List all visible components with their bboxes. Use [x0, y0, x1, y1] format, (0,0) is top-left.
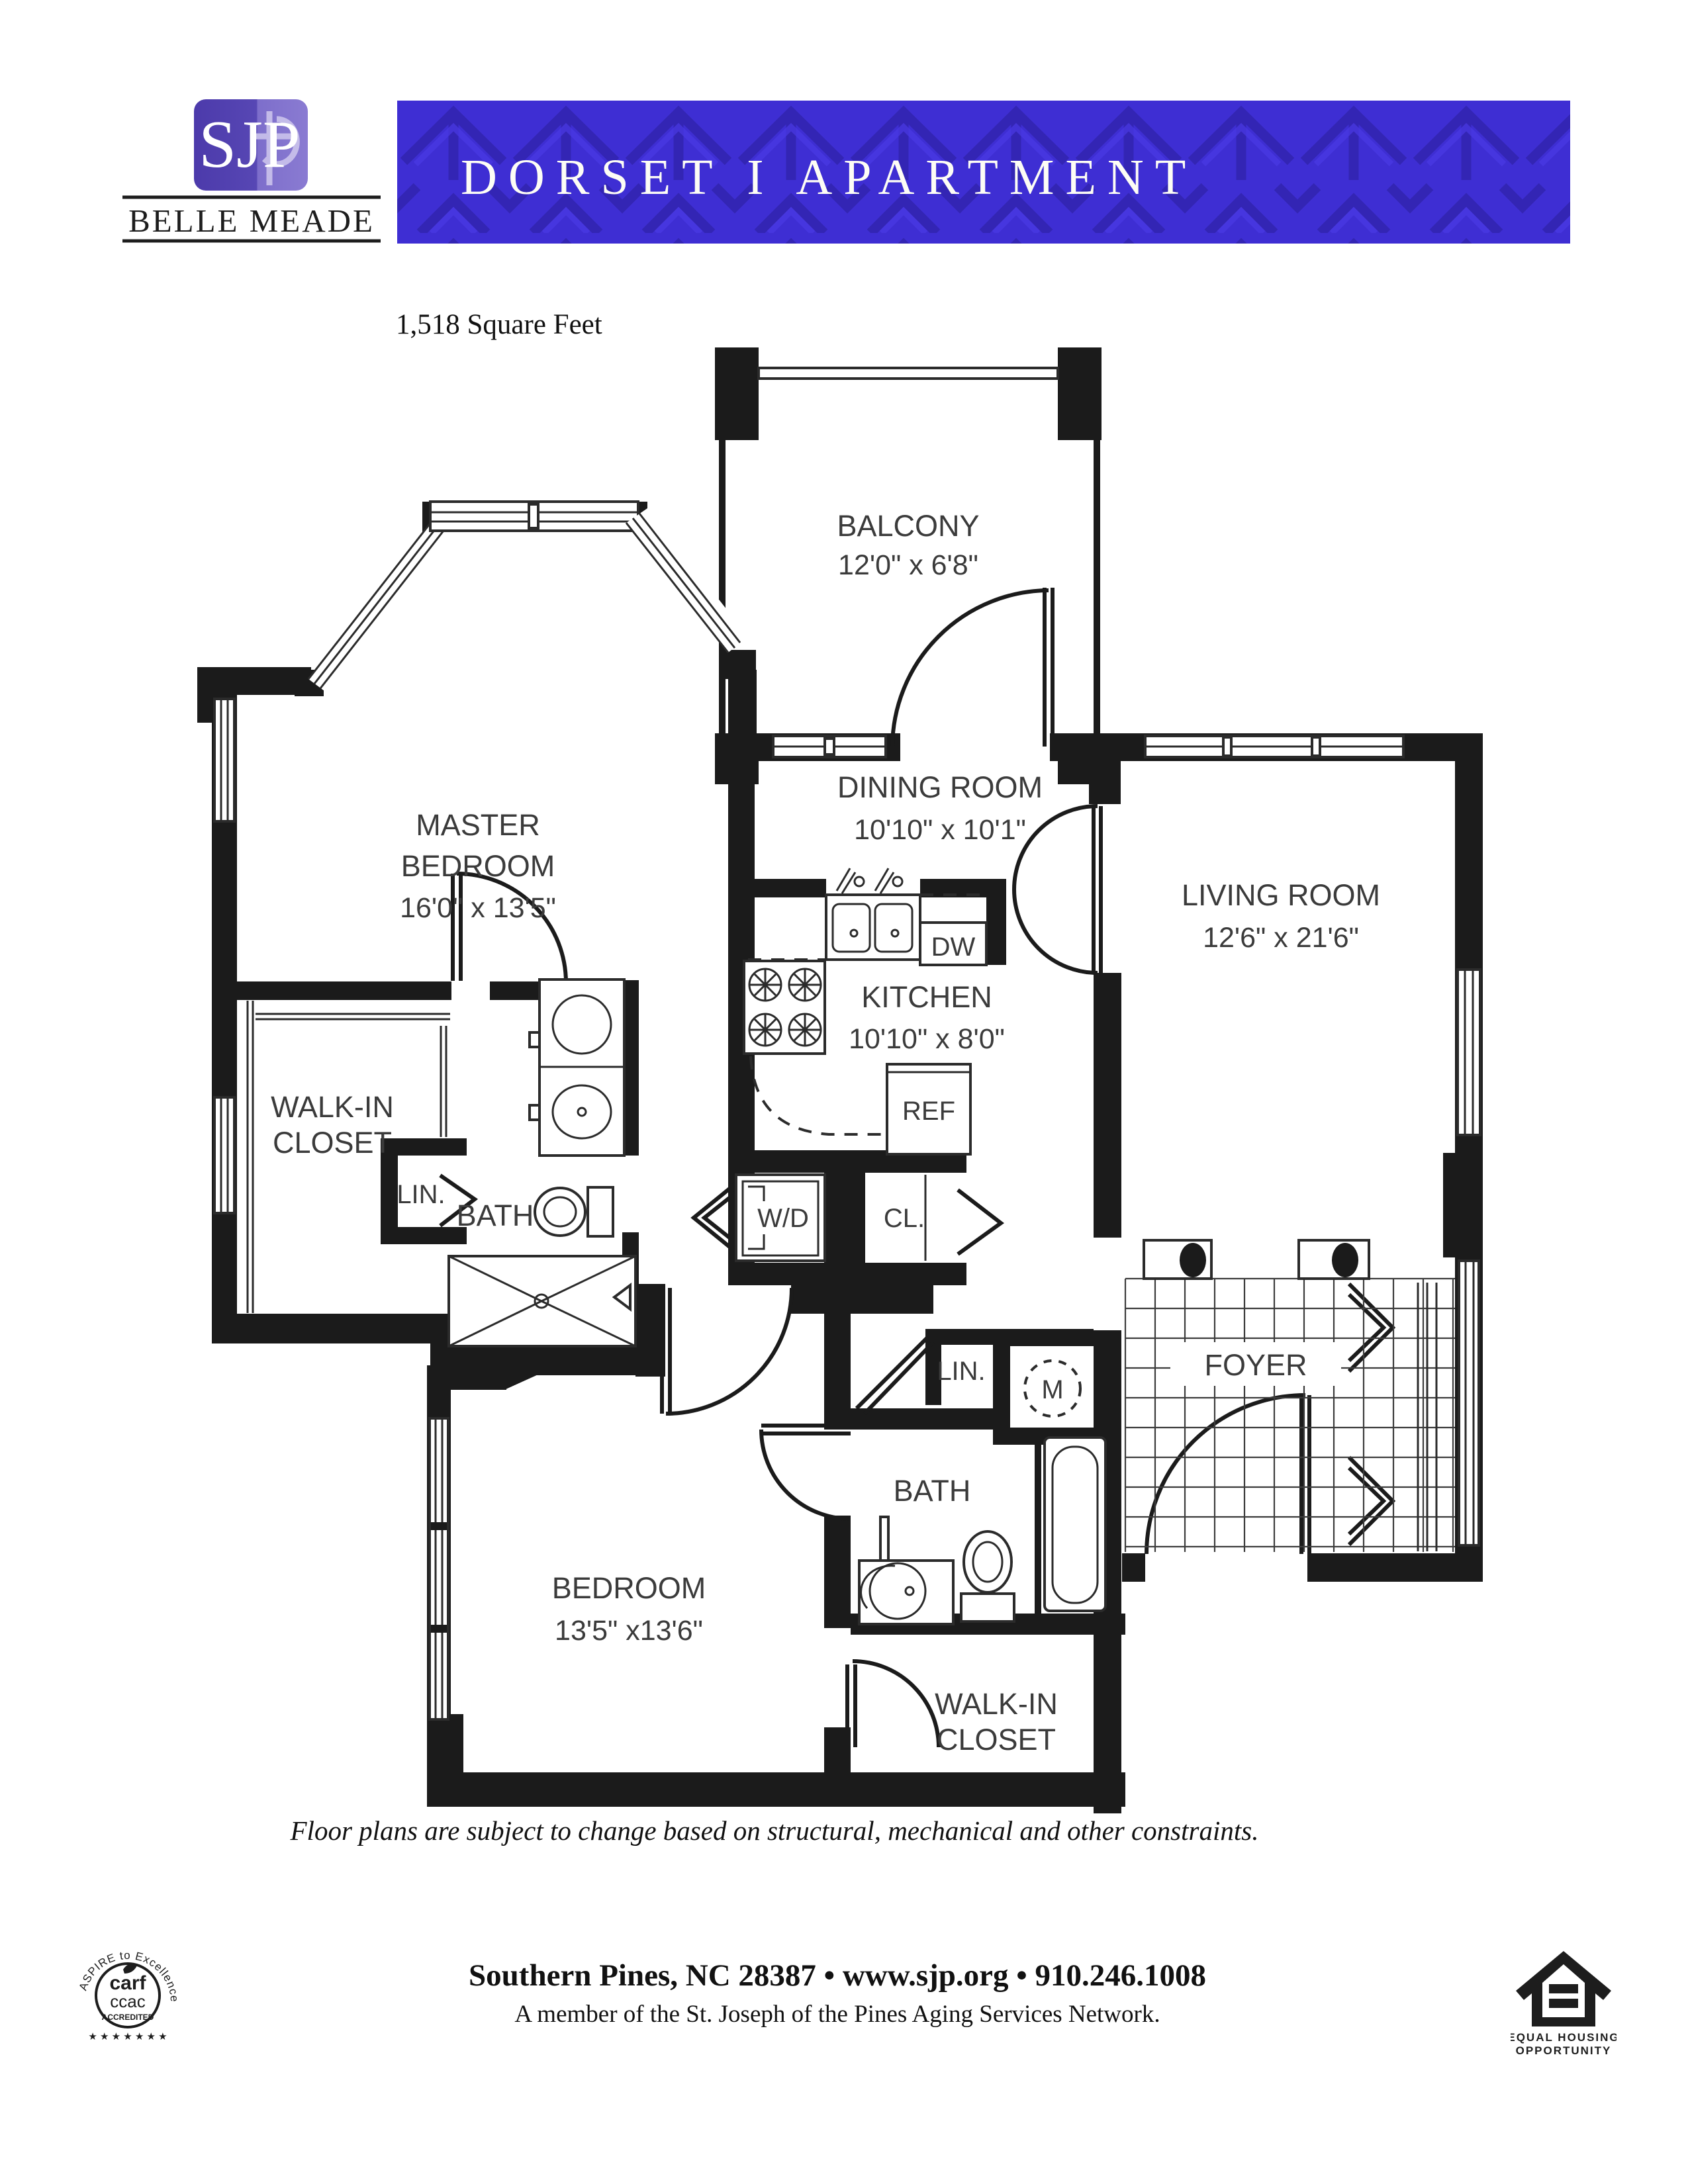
wall-segment: [1035, 1430, 1041, 1615]
hall-door: [662, 1288, 792, 1414]
wall-segment: [490, 981, 543, 1000]
washer-dryer: W/D: [736, 1175, 825, 1261]
wall-segment: [1443, 1153, 1458, 1257]
refrigerator: REF: [887, 1064, 970, 1154]
wall-segment: [1058, 347, 1102, 440]
address-line: Southern Pines, NC 28387 • www.sjp.org •…: [0, 1958, 1675, 1993]
bay-window-left: [308, 522, 453, 695]
wall-segment: [430, 1343, 637, 1375]
mechanical-closet: M: [1010, 1346, 1094, 1428]
master-bath-door: [453, 874, 566, 983]
wall-segment: [1455, 733, 1483, 833]
bedroom2-window: [430, 1418, 448, 1719]
wall-segment: [986, 879, 1006, 965]
wall-segment: [719, 440, 726, 735]
bay-window-top: [430, 502, 638, 531]
closet2-door: [847, 1661, 939, 1747]
master-bath-label: BATH: [457, 1199, 534, 1232]
svg-text:M: M: [1041, 1375, 1063, 1404]
dishwasher: DW: [920, 923, 986, 965]
entry-door: [1147, 1395, 1309, 1554]
balcony-rail: [759, 368, 1058, 379]
kitchen-dims: 10'10" x 8'0": [849, 1023, 1005, 1055]
hall-closet: CL.: [865, 1175, 957, 1261]
living-window: [1458, 970, 1480, 1135]
carf-ccac-seal: ASPIRE to Excellence® carf ccac ACCREDIT…: [71, 1939, 184, 2052]
hall-linen-bifold-icon: [857, 1337, 933, 1414]
window-mullion: [1223, 737, 1231, 756]
window-mullion: [825, 739, 834, 754]
balcony-dims: 12'0" x 6'8": [838, 549, 978, 581]
master-bath-fixtures: [248, 979, 635, 1346]
wall-segment: [728, 1263, 966, 1285]
wall-segment: [212, 1314, 453, 1343]
bedroom2-dims: 13'5" x13'6": [555, 1615, 703, 1647]
wall-segment: [728, 670, 757, 733]
wall-segment: [381, 1227, 467, 1244]
balcony-door: [892, 588, 1053, 747]
walkin-closet2-label-2: CLOSET: [937, 1723, 1056, 1756]
wall-segment: [824, 1314, 851, 1430]
wall-segment: [381, 1138, 467, 1156]
foyer-label: FOYER: [1204, 1348, 1307, 1382]
vanity2-icon: [859, 1517, 953, 1624]
disclaimer-text: Floor plans are subject to change based …: [0, 1815, 1549, 1846]
living-room-label: LIVING ROOM: [1182, 878, 1380, 912]
foyer-bifold-lower-icon: [1349, 1457, 1393, 1545]
floor-plan-page: SJP BELLE MEADE DORSET I APARTME: [0, 0, 1688, 2184]
belle-meade-logo: SJP BELLE MEADE: [122, 85, 381, 250]
equal-housing-house-icon: [1516, 1951, 1611, 2026]
counter-dashed-edge: [751, 1056, 887, 1134]
bath2-fixtures: [859, 1437, 1105, 1624]
master-bedroom-dims: 16'0" x 13'5": [400, 892, 556, 924]
master-bedroom-label-1: MASTER: [416, 808, 540, 842]
hall-linen-label: LIN.: [937, 1357, 985, 1386]
foyer-bifold-upper-icon: [1349, 1284, 1393, 1371]
seal-stars: ★ ★ ★ ★ ★ ★ ★: [88, 2031, 167, 2042]
shower-icon: [449, 1256, 635, 1346]
bay-window-right: [626, 508, 748, 653]
wall-segment: [1089, 733, 1121, 804]
dining-room-label: DINING ROOM: [837, 770, 1043, 804]
svg-text:REF: REF: [902, 1097, 955, 1126]
bathtub-icon: [1045, 1437, 1105, 1611]
wall-segment: [993, 1329, 1010, 1445]
svg-text:DW: DW: [931, 933, 976, 962]
wall-segment: [723, 650, 756, 679]
wall-segment: [1307, 1553, 1483, 1582]
network-line: A member of the St. Joseph of the Pines …: [0, 2000, 1675, 2028]
bedroom2-label: BEDROOM: [552, 1571, 706, 1605]
eho-line2: OPPORTUNITY: [1516, 2044, 1612, 2057]
wall-segment: [715, 347, 759, 440]
cabinet-knob-icon: [1180, 1243, 1206, 1277]
walkin-closet-label-2: CLOSET: [273, 1126, 392, 1160]
walkin-closet-label-1: WALK-IN: [271, 1090, 394, 1124]
seal-accredited: ACCREDITED: [102, 2013, 154, 2022]
master-vanity-icon: [530, 979, 624, 1156]
wall-segment: [755, 879, 826, 897]
kitchen-label: KITCHEN: [861, 980, 992, 1014]
master-bedroom-label-2: BEDROOM: [401, 849, 555, 883]
eho-line1: EQUAL HOUSING: [1511, 2031, 1617, 2044]
bath2-door: [761, 1426, 851, 1519]
wall-segment: [824, 1516, 851, 1628]
dining-arch-door: [1014, 806, 1101, 973]
cabinet-knob-icon: [1332, 1243, 1358, 1277]
equal-housing-logo: EQUAL HOUSING OPPORTUNITY: [1511, 1946, 1617, 2058]
wall-segment: [197, 667, 212, 723]
kitchen-sink-icon: [826, 868, 920, 960]
sjp-monogram: SJP: [199, 107, 300, 182]
master-linen-label: LIN.: [397, 1180, 445, 1209]
balcony-label: BALCONY: [837, 509, 979, 543]
wall-segment: [212, 981, 451, 1000]
floor-plan-drawing: DW REF: [185, 331, 1489, 1833]
wall-segment: [1094, 973, 1121, 1238]
title-banner: DORSET I APARTMENT: [397, 101, 1570, 244]
stove-icon: [744, 961, 825, 1054]
master-toilet-icon: [535, 1187, 613, 1236]
wall-segment: [715, 733, 759, 784]
master-window-1: [214, 699, 234, 821]
dining-room-dims: 10'10" x 10'1": [854, 814, 1026, 846]
wall-segment: [1122, 1553, 1145, 1582]
wall-segment: [791, 1285, 933, 1314]
entry-sidelight: [1459, 1261, 1479, 1545]
wall-segment: [427, 1772, 1125, 1807]
wall-segment: [1094, 440, 1100, 735]
wall-segment: [728, 784, 755, 880]
toilet2-icon: [961, 1531, 1014, 1621]
walkin-closet2-label-1: WALK-IN: [935, 1687, 1058, 1721]
window-mullion: [1312, 737, 1320, 756]
brand-name: BELLE MEADE: [128, 203, 375, 239]
seal-ccac: ccac: [110, 1991, 145, 2011]
master-window-2: [214, 1097, 234, 1213]
cl-arrow-icon: [958, 1190, 1001, 1254]
svg-text:CL.: CL.: [884, 1204, 925, 1233]
living-room-dims: 12'6" x 21'6": [1203, 922, 1359, 954]
svg-text:W/D: W/D: [757, 1204, 809, 1233]
banner-title: DORSET I APARTMENT: [461, 150, 1197, 205]
bath2-label: BATH: [894, 1474, 971, 1508]
